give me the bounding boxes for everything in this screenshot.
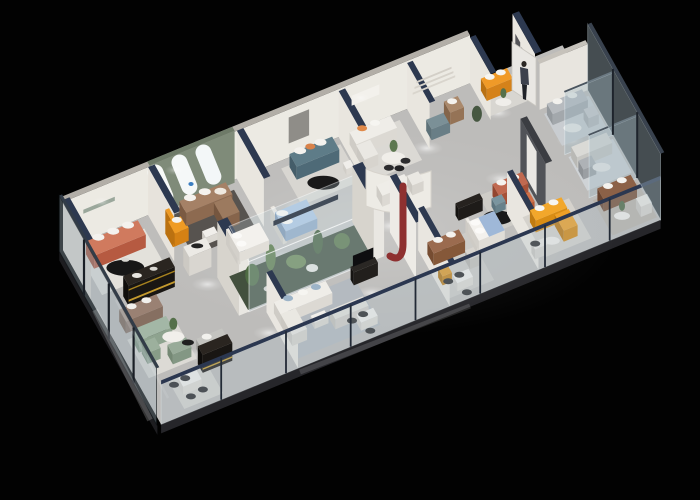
- bed-pillow: [237, 241, 247, 247]
- showroom-screenshot: [0, 0, 700, 500]
- table-plant: [169, 318, 177, 330]
- sofa-pillow: [496, 69, 506, 75]
- bed-pillow: [475, 228, 485, 234]
- sofa-pillow: [446, 232, 456, 238]
- sofa-pillow: [315, 139, 327, 146]
- sofa-pillow: [122, 222, 134, 229]
- sofa-pillow: [311, 284, 321, 290]
- table-plant: [390, 140, 398, 152]
- sofa-pillow: [184, 194, 196, 201]
- dining-chair: [401, 158, 411, 164]
- cabinet-tray: [191, 243, 203, 248]
- sofa-pillow: [370, 120, 380, 126]
- sofa-pillow: [199, 188, 211, 195]
- sofa-pillow: [92, 234, 104, 241]
- sofa-pillow: [496, 180, 506, 186]
- sofa-pillow: [447, 98, 457, 104]
- sofa-pillow: [553, 98, 563, 104]
- isometric-showroom-render: [0, 0, 700, 500]
- table-plant: [500, 88, 506, 98]
- sofa-pillow: [141, 297, 151, 303]
- round-table: [162, 331, 184, 342]
- sofa-pillow: [549, 199, 559, 205]
- wall-spotlight-glow: [93, 197, 111, 207]
- bed-pillow: [232, 233, 242, 239]
- sofa-pillow: [433, 237, 443, 243]
- dining-chair: [394, 165, 404, 171]
- sofa-pillow: [214, 188, 226, 195]
- black-side-table: [182, 340, 194, 346]
- sofa-pillow: [603, 183, 613, 189]
- sofa-pillow: [172, 217, 182, 223]
- sofa-pillow: [283, 295, 293, 301]
- salesperson-head: [521, 61, 526, 67]
- sofa-pillow: [535, 205, 545, 211]
- sofa-pillow: [107, 228, 119, 235]
- dining-chair: [384, 165, 394, 171]
- wall-spotlight-glow: [165, 165, 185, 175]
- arch-logo-mark: [188, 182, 193, 186]
- sofa-pillow: [298, 289, 308, 295]
- round-side-table: [495, 98, 511, 106]
- sofa-pillow: [485, 74, 495, 80]
- wall-spotlight-glow: [352, 93, 370, 103]
- table-deco: [121, 258, 129, 262]
- sofa-pillow: [127, 303, 137, 309]
- salesperson-torso: [520, 67, 529, 85]
- sofa-pillow: [617, 177, 627, 183]
- sofa-pillow: [202, 334, 212, 340]
- bed-pillow: [470, 220, 480, 226]
- sofa-pillow: [294, 147, 306, 154]
- cabinet-deco: [132, 273, 142, 278]
- cabinet-deco: [150, 267, 158, 271]
- sofa-pillow: [305, 144, 315, 150]
- floor-plant: [472, 106, 482, 122]
- sofa-pillow: [357, 125, 367, 131]
